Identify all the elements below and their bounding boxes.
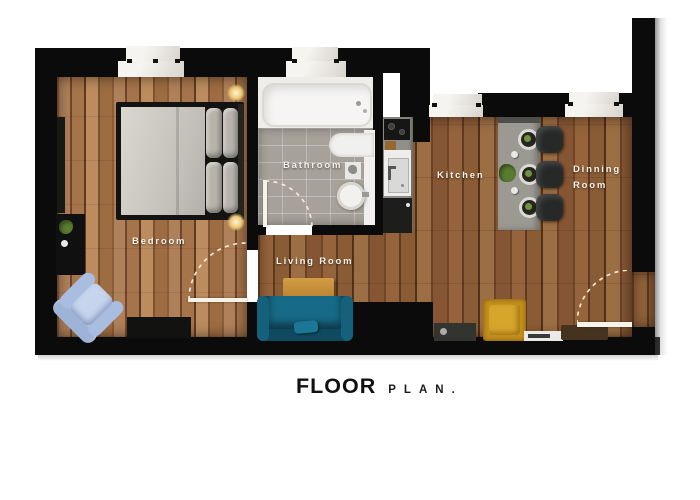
- wall-sconce-light: [227, 213, 245, 231]
- soap-dispenser: [348, 165, 357, 174]
- bathroom-vanity: [329, 133, 374, 157]
- stove-burner: [399, 129, 405, 135]
- wall-right-lower: [632, 327, 655, 355]
- dining-room-label-line2: Room: [573, 180, 607, 191]
- fridge-block: [412, 117, 430, 142]
- wall-kitchen-top-stub: [400, 77, 430, 117]
- bathroom-label: Bathroom: [283, 160, 342, 171]
- window-frame-tick: [153, 59, 158, 63]
- toilet-fitting: [362, 192, 369, 197]
- sofa-pillow: [294, 320, 319, 334]
- window-frame-tick: [432, 103, 437, 107]
- wall-between-windows: [478, 93, 570, 117]
- bar-stool: [536, 126, 563, 153]
- entry-alcove-floor: [632, 271, 655, 328]
- bathroom-door-swing-arc: [265, 180, 313, 228]
- window-frame-tick: [568, 102, 573, 106]
- bed-pillow: [206, 162, 222, 213]
- stove: [384, 119, 410, 140]
- window-frame-tick: [175, 59, 180, 63]
- bathroom-window-inner: [286, 61, 346, 77]
- window-frame-tick: [292, 59, 297, 63]
- potted-plant: [499, 164, 516, 182]
- floor-plan: Bedroom Bathroom Living Room Kitchen Din…: [0, 0, 700, 500]
- bed-headboard: [238, 104, 244, 218]
- dining-window-outer: [569, 92, 619, 104]
- decor-ball: [511, 187, 518, 194]
- bar-stool: [536, 194, 563, 221]
- dining-room-label-line1: Dinning: [573, 164, 621, 175]
- island-edge: [498, 117, 540, 123]
- bar-stool: [536, 161, 563, 188]
- decor-ball: [511, 151, 518, 158]
- bathtub: [262, 83, 372, 127]
- entry-door-swing-arc: [577, 270, 632, 325]
- bed-pillow: [223, 162, 238, 213]
- bedroom-door-swing-arc: [188, 242, 247, 301]
- bedroom-window-inner: [118, 61, 184, 77]
- window-frame-tick: [334, 59, 339, 63]
- bedroom-label: Bedroom: [132, 236, 186, 247]
- toilet: [337, 182, 365, 210]
- sofa-arm: [257, 296, 269, 341]
- sink-faucet: [388, 166, 396, 169]
- kitchen-window-outer: [433, 94, 482, 105]
- page-title: FLOOR PLAN .: [296, 374, 455, 399]
- gold-armchair-cushion: [489, 305, 520, 335]
- bathroom-window-outer: [292, 47, 338, 62]
- plate-garnish: [525, 170, 532, 177]
- title-plan: PLAN: [388, 384, 451, 396]
- cutting-board: [385, 141, 396, 150]
- title-period: .: [452, 384, 455, 396]
- wall-top: [35, 48, 430, 77]
- bathtub-drain: [363, 109, 367, 113]
- window-frame-tick: [614, 102, 619, 106]
- living-room-label: Living Room: [276, 256, 353, 267]
- plate-garnish: [524, 135, 531, 142]
- sink-basin: [388, 158, 409, 193]
- bed-pillow: [223, 108, 238, 158]
- bedroom-media-console: [127, 317, 191, 338]
- bed-pillow: [206, 108, 222, 158]
- bed-duvet: [121, 107, 205, 215]
- wall-right-upper: [632, 18, 655, 272]
- wardrobe: [57, 117, 65, 213]
- entry-closet-block: [352, 302, 433, 339]
- wall-shadow: [655, 18, 668, 355]
- media-unit: [434, 323, 476, 341]
- shoe-tray-items: [528, 334, 550, 338]
- wall-notch: [383, 73, 400, 117]
- floor-plan-canvas: Bedroom Bathroom Living Room Kitchen Din…: [0, 0, 700, 500]
- decor-ball: [61, 240, 68, 247]
- stove-burner: [388, 123, 395, 130]
- sink-drain: [401, 184, 404, 187]
- kitchen-window-inner: [429, 105, 483, 117]
- gold-armchair: [483, 299, 526, 341]
- title-floor: FLOOR: [296, 374, 376, 399]
- shoe-tray: [524, 331, 563, 341]
- bed-duvet-fold: [176, 107, 179, 215]
- entry-bench: [561, 325, 608, 340]
- cabinet-knob: [406, 203, 410, 207]
- sofa: [257, 296, 353, 341]
- media-unit-icon: [440, 328, 447, 335]
- kitchen-label: Kitchen: [437, 170, 484, 181]
- sofa-arm: [341, 296, 353, 341]
- wall-bedroom-bathroom-divider: [247, 48, 258, 250]
- plate-garnish: [525, 203, 532, 210]
- bathroom-shelf: [345, 162, 361, 179]
- wall-sconce-light: [227, 84, 245, 102]
- bathtub-faucet: [356, 101, 361, 106]
- wall-shadow: [38, 355, 658, 361]
- window-frame-tick: [476, 103, 481, 107]
- window-frame-tick: [127, 59, 132, 63]
